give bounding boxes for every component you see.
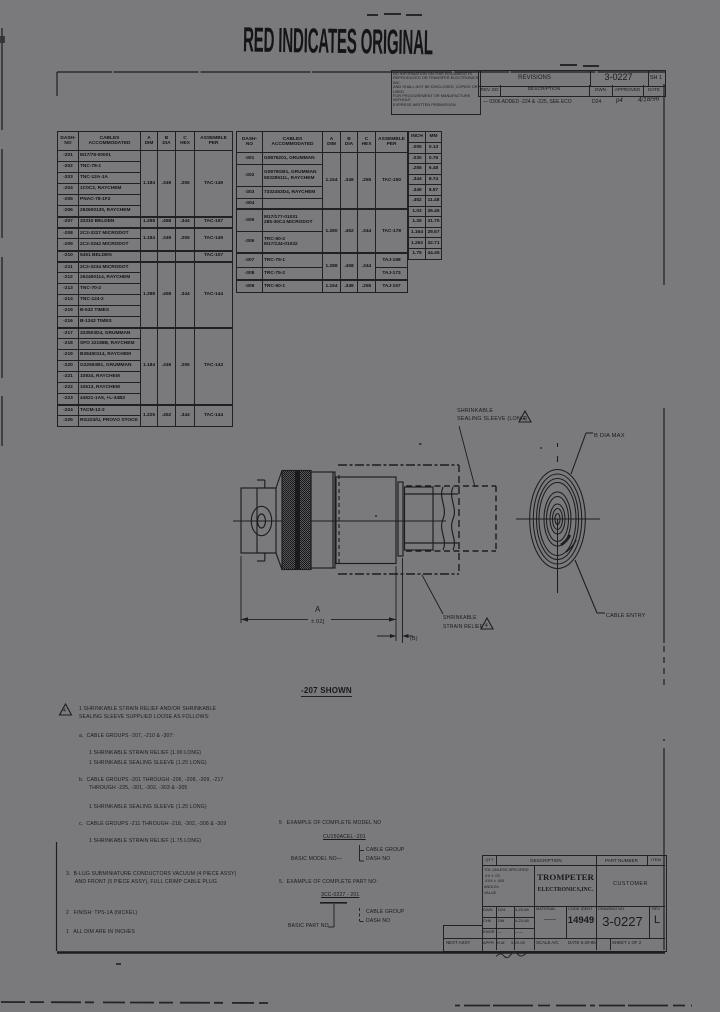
svg-text:CABLE ENTRY: CABLE ENTRY xyxy=(606,613,646,619)
svg-text:SHRINKABLE: SHRINKABLE xyxy=(443,615,477,621)
svg-text:4: 4 xyxy=(485,623,488,629)
svg-text:STRAIN RELIEF: STRAIN RELIEF xyxy=(443,624,483,630)
svg-text:±.02]: ±.02] xyxy=(311,619,325,625)
svg-text:B DIA MAX: B DIA MAX xyxy=(594,433,625,439)
svg-text:A: A xyxy=(315,605,321,614)
svg-text:(B): (B) xyxy=(410,636,418,642)
svg-text:SHRINKABLE: SHRINKABLE xyxy=(457,408,493,414)
svg-text:4: 4 xyxy=(523,416,526,422)
svg-text:4: 4 xyxy=(63,708,66,714)
svg-text:SEALING SLEEVE (LONG): SEALING SLEEVE (LONG) xyxy=(457,416,527,422)
